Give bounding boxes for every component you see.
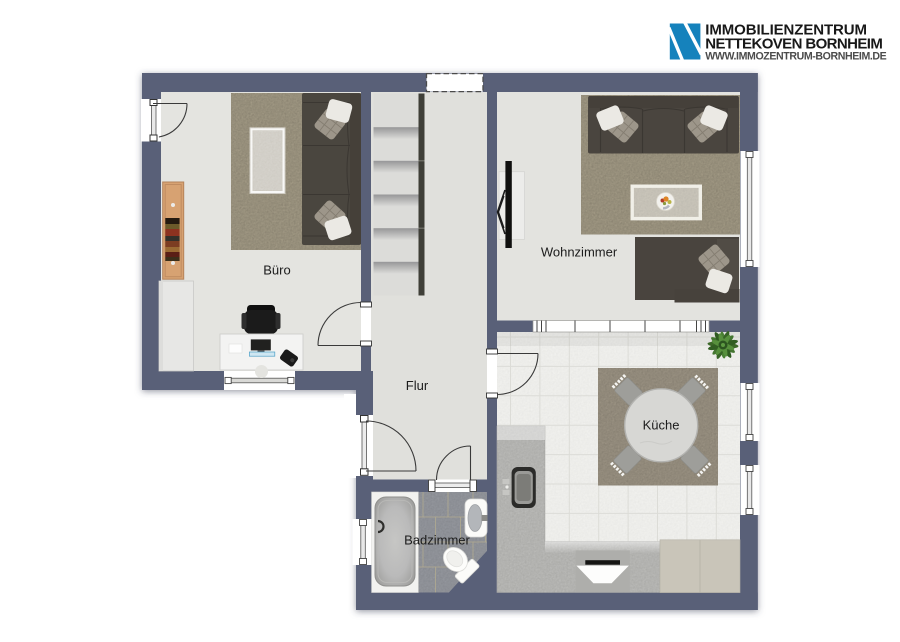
svg-text:WWW.IMMOZENTRUM-BORNHEIM.DE: WWW.IMMOZENTRUM-BORNHEIM.DE — [705, 50, 886, 62]
svg-text:Flur: Flur — [406, 378, 429, 393]
svg-text:Küche: Küche — [643, 418, 680, 433]
svg-text:Wohnzimmer: Wohnzimmer — [541, 245, 618, 260]
svg-text:Büro: Büro — [263, 263, 290, 278]
svg-text:Badzimmer: Badzimmer — [404, 533, 470, 548]
